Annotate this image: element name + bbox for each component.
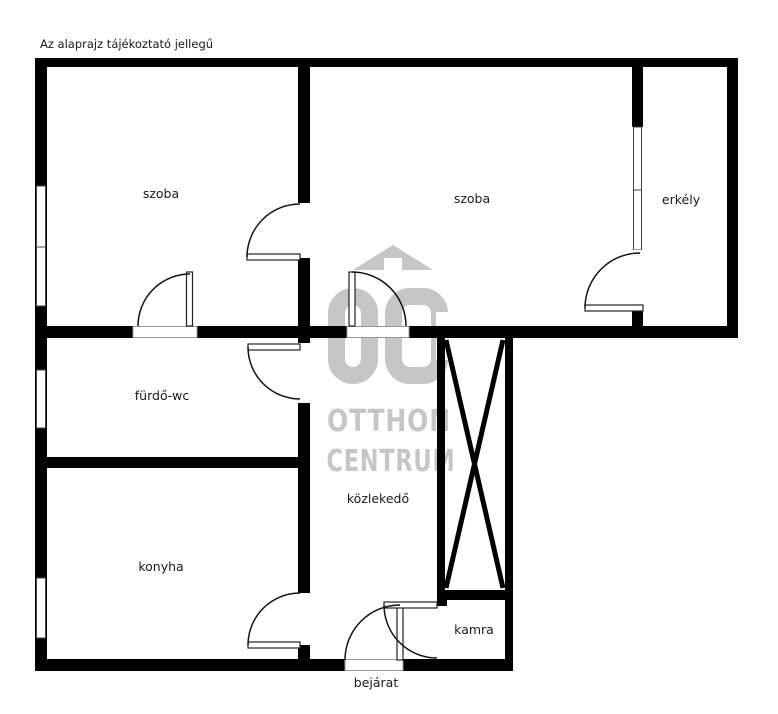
doorway-szoba-szoba (298, 203, 310, 258)
wall-erkely-right (727, 58, 738, 338)
wall-erkely-partition-top (632, 58, 643, 127)
wall-furdo-konyha (35, 457, 310, 468)
wall-horizontal-b (197, 326, 347, 338)
window-erkely (634, 127, 642, 250)
wall-partition-lower (298, 403, 310, 593)
door-arc-erkely (585, 253, 640, 308)
window-konyha (37, 578, 46, 638)
wall-horizontal-a (35, 326, 133, 338)
door-arc-szoba-furdo (138, 274, 190, 326)
door-arc-szoba-szoba (247, 204, 300, 257)
door-arc-konyha (248, 593, 300, 645)
wall-partition-foot (298, 645, 310, 671)
windows (37, 127, 642, 638)
room-label-szoba-left: szoba (143, 186, 179, 201)
wall-horizontal-c (409, 326, 738, 338)
wall-bottom-right (403, 659, 513, 671)
door-leaf-bejarat (397, 605, 403, 660)
watermark-roof-notch (384, 258, 402, 270)
watermark-word-2: CENTRUM (327, 444, 456, 479)
room-label-szoba-right: szoba (454, 191, 490, 206)
room-label-erkely: erkély (662, 192, 701, 207)
wall-shaft-left (437, 338, 445, 590)
doorway-erkely (632, 250, 643, 310)
doorway-furdo (298, 343, 310, 403)
threshold-kozlekedo-szoba (347, 327, 409, 338)
wall-partition-upper (298, 58, 310, 203)
door-arc-furdo (248, 347, 300, 399)
window-szoba-left (37, 186, 46, 306)
wall-shaft-right (505, 338, 513, 671)
floor-plan-svg: OC OTTHON CENTRUM (0, 0, 778, 714)
room-label-bejarat: bejárat (354, 675, 399, 690)
door-leaf-furdo (248, 344, 300, 350)
threshold-szoba-furdo (133, 327, 197, 338)
wall-kamra-left-stub (437, 600, 447, 606)
door-arc-kamra (384, 605, 437, 658)
doorway-kamra (437, 606, 447, 659)
disclaimer-text: Az alaprajz tájékoztató jellegű (40, 37, 213, 51)
room-label-kozlekedo: közlekedő (347, 491, 409, 506)
window-furdo (37, 370, 46, 428)
watermark-word-1: OTTHON (327, 404, 451, 439)
door-leaf-szoba-furdo (187, 272, 193, 326)
wall-kamra-top (437, 590, 513, 600)
watermark: OC OTTHON CENTRUM (327, 245, 456, 479)
door-leaf-erkely (585, 305, 643, 311)
door-leaf-kozlekedo-szoba (349, 272, 355, 326)
room-label-konyha: konyha (138, 559, 183, 574)
room-label-furdo-wc: fürdő-wc (135, 388, 190, 403)
threshold-bejarat (345, 660, 403, 671)
floor-plan-page: OC OTTHON CENTRUM (0, 0, 778, 714)
door-leaf-konyha (248, 642, 300, 648)
doorway-konyha (298, 593, 310, 645)
door-leaf-szoba-szoba (247, 254, 300, 260)
wall-erkely-partition-bottom (632, 310, 643, 338)
room-label-kamra: kamra (454, 622, 494, 637)
